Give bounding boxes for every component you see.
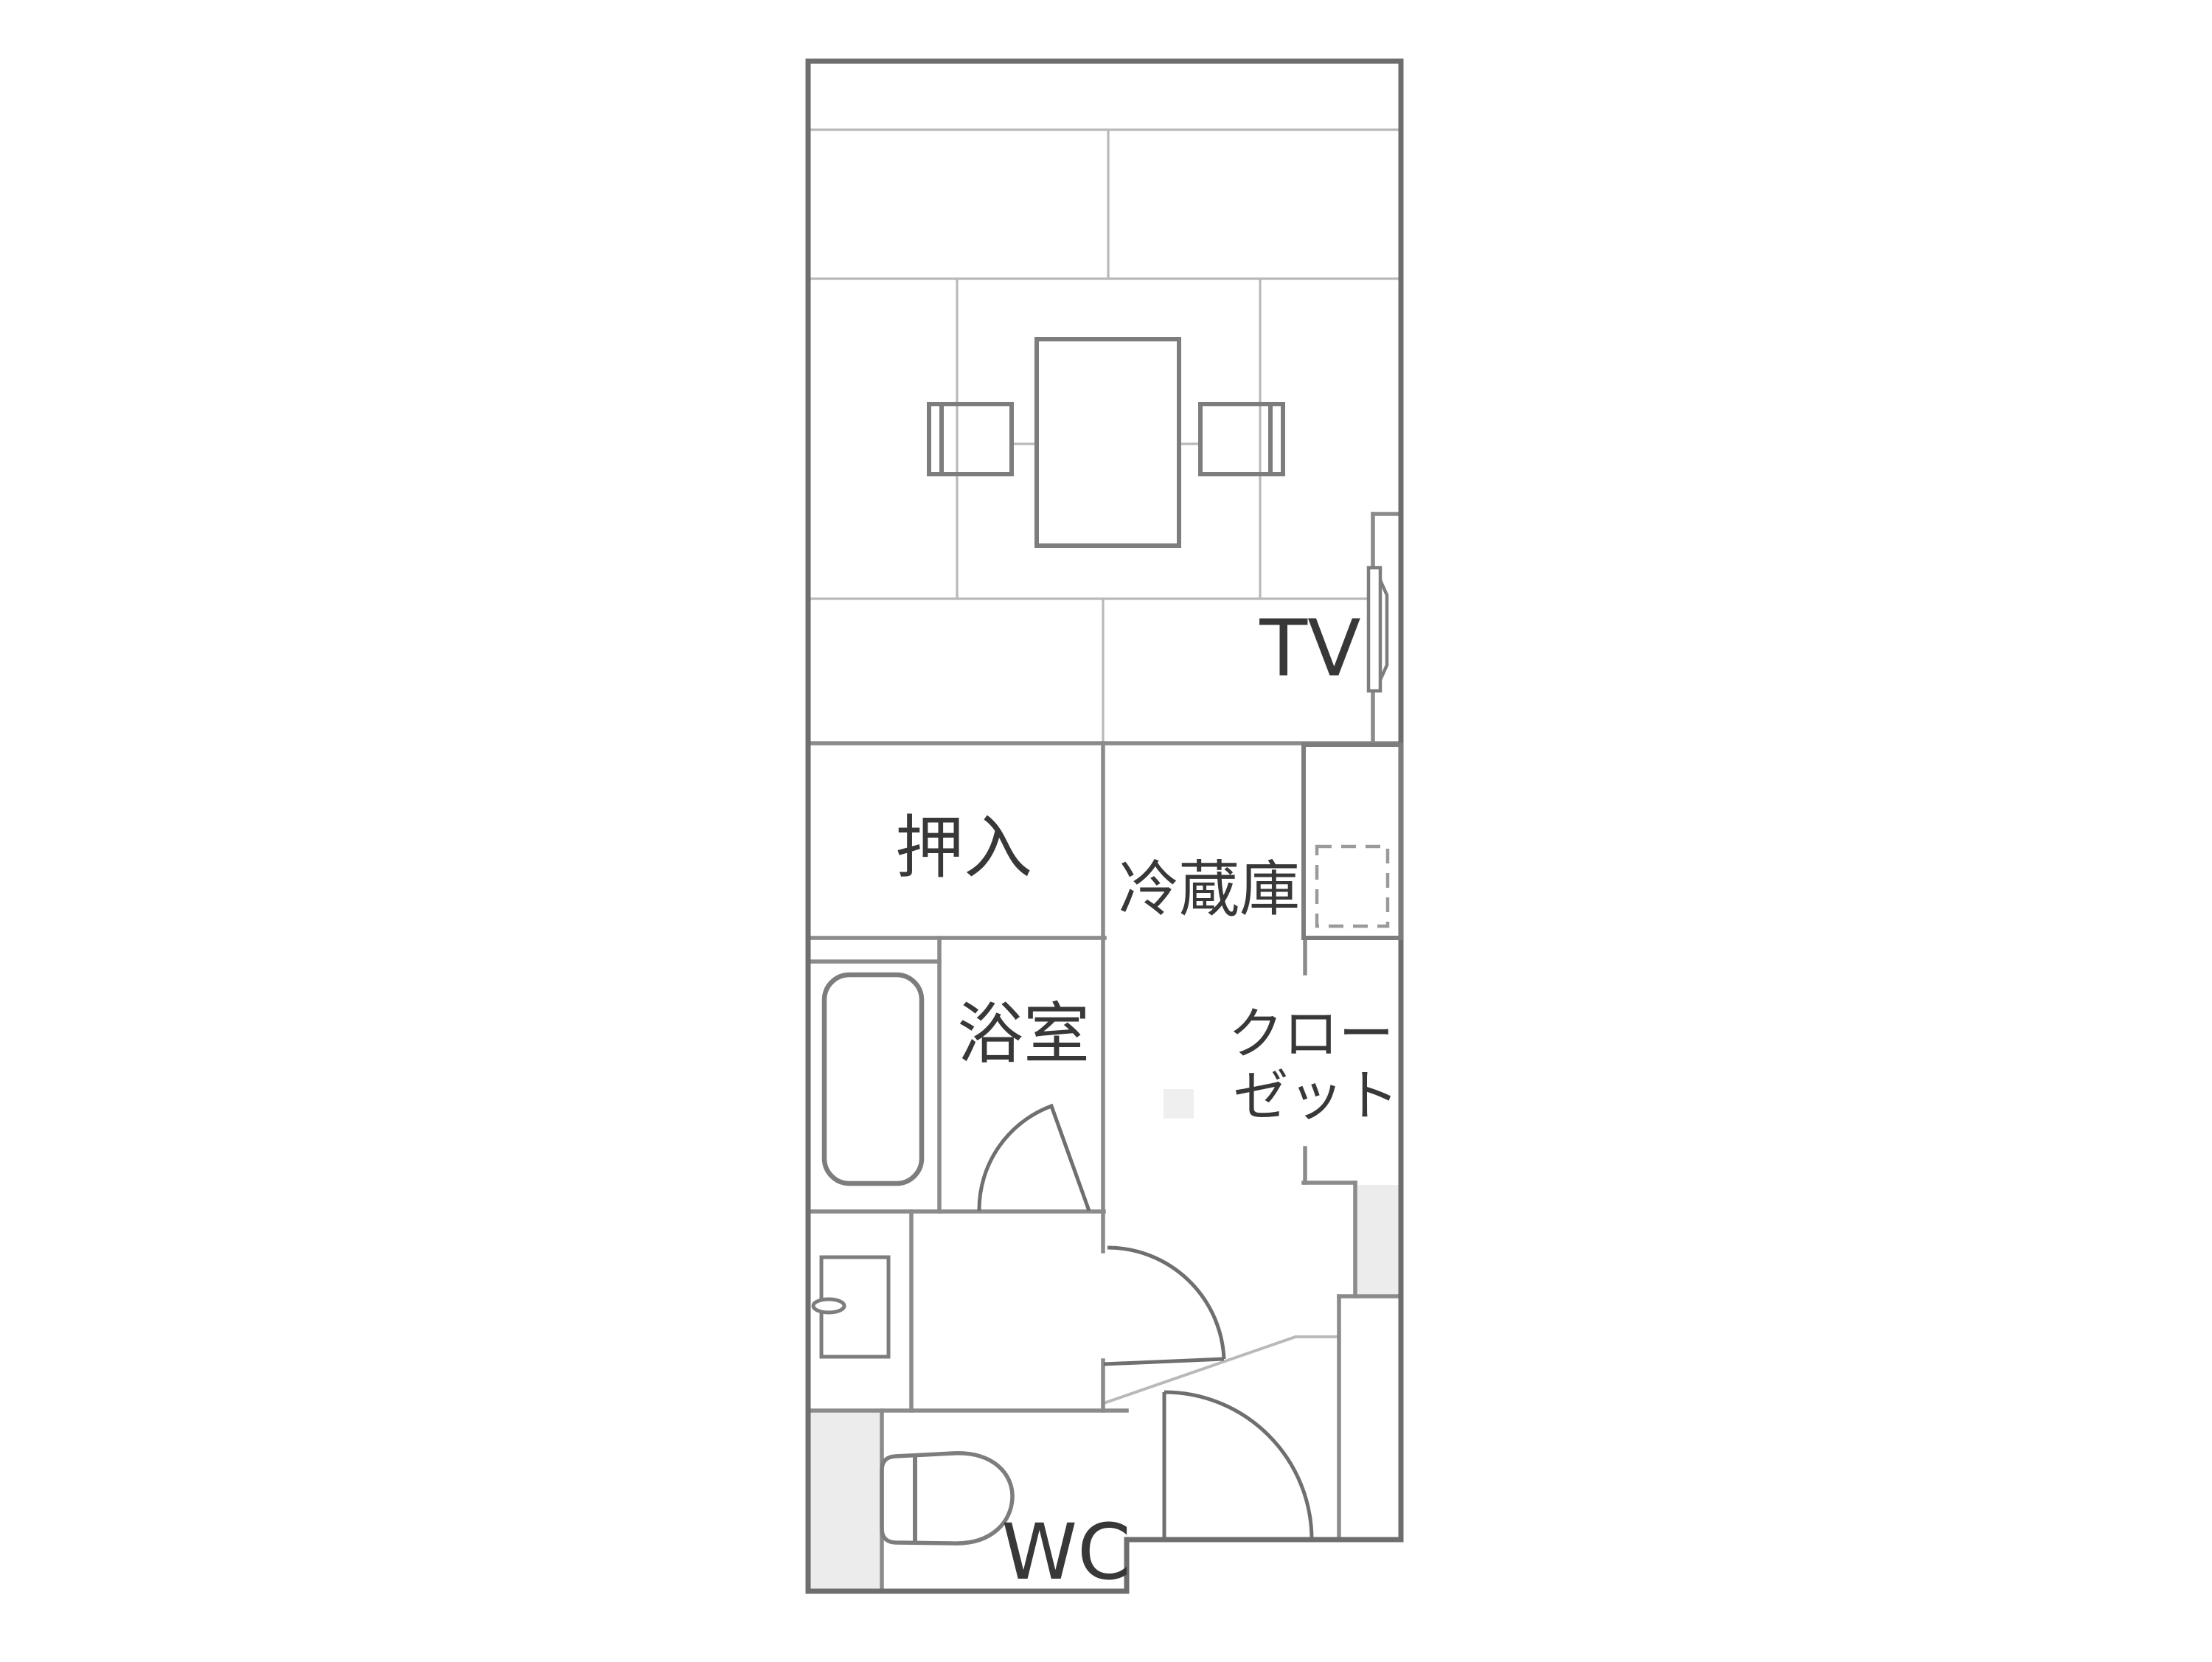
label-closet-line1: クロー: [1228, 1001, 1394, 1066]
label-oshiire: 押入: [895, 808, 1032, 888]
bathtub: [824, 975, 922, 1183]
room-labels: 押入 冷蔵庫 浴室 クロー ゼット TV WC: [895, 603, 1399, 1597]
floor-plan-drawing: 押入 冷蔵庫 浴室 クロー ゼット TV WC: [0, 0, 2212, 1662]
label-closet-line2: ゼット: [1233, 1063, 1399, 1128]
label-refrigerator: 冷蔵庫: [1119, 855, 1300, 925]
label-bathroom: 浴室: [957, 995, 1090, 1073]
hall-door-arc: [1107, 1248, 1224, 1359]
entry-door-arc: [1164, 1392, 1312, 1539]
doors: [979, 1106, 1312, 1539]
faint-fill: [1164, 1089, 1194, 1119]
wc-step-fill: [810, 1412, 882, 1590]
entry-step-fill: [1357, 1185, 1399, 1295]
hall-door-leaf: [1104, 1359, 1224, 1364]
table: [1037, 339, 1179, 546]
tv-screen: [1368, 568, 1380, 691]
label-wc: WC: [1001, 1507, 1130, 1597]
bathroom-door-swing: [979, 1106, 1089, 1211]
refrigerator-dashed-outline: [1317, 846, 1388, 926]
toilet-bowl: [882, 1453, 1012, 1543]
washbasin-faucet: [813, 1299, 844, 1312]
floor-plan-page: 押入 冷蔵庫 浴室 クロー ゼット TV WC: [0, 0, 2212, 1662]
label-tv: TV: [1259, 603, 1360, 694]
hall-faint-square: [1164, 1089, 1194, 1119]
